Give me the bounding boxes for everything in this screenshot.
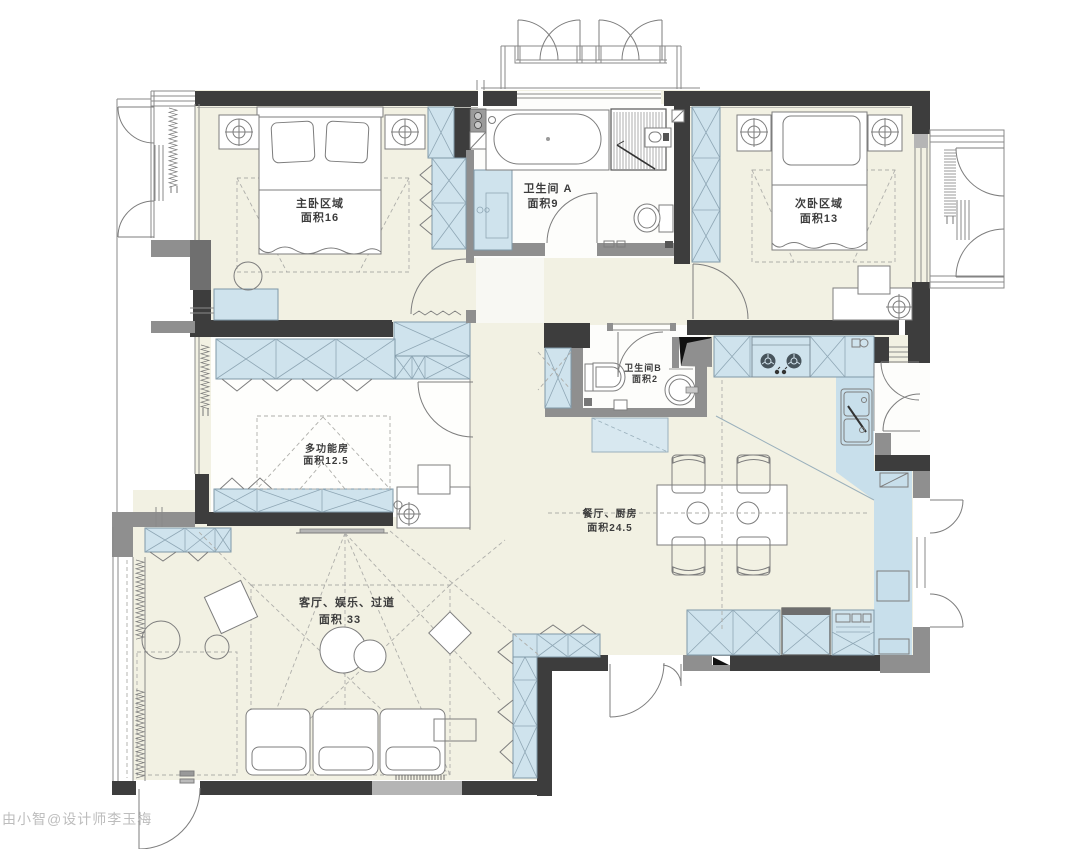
svg-text:面积13: 面积13 <box>800 211 838 225</box>
svg-text:卫生间 A: 卫生间 A <box>524 181 573 195</box>
svg-text:面积 33: 面积 33 <box>319 612 361 626</box>
svg-text:餐厅、厨房: 餐厅、厨房 <box>582 507 638 520</box>
svg-text:面积24.5: 面积24.5 <box>587 521 632 534</box>
svg-text:卫生间B: 卫生间B <box>624 362 662 373</box>
svg-text:多功能房: 多功能房 <box>305 442 349 455</box>
svg-text:面积12.5: 面积12.5 <box>303 454 348 467</box>
svg-text:面积2: 面积2 <box>632 373 658 384</box>
svg-text:主卧区域: 主卧区域 <box>296 196 344 210</box>
svg-text:面积9: 面积9 <box>527 196 558 210</box>
svg-text:客厅、娱乐、过道: 客厅、娱乐、过道 <box>298 595 395 609</box>
svg-text:面积16: 面积16 <box>301 210 339 224</box>
svg-text:次卧区域: 次卧区域 <box>795 196 843 210</box>
svg-text:由小智@设计师李玉梅: 由小智@设计师李玉梅 <box>2 811 152 827</box>
